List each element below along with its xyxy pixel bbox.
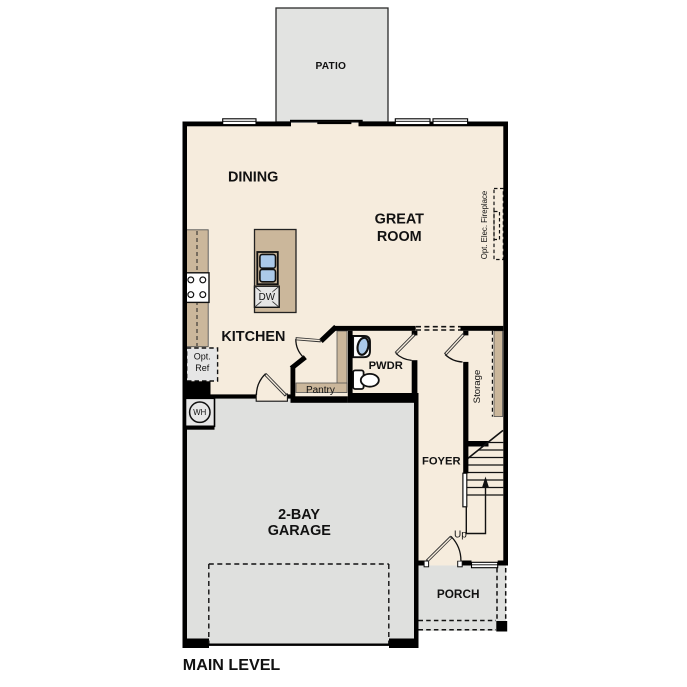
svg-text:GARAGE: GARAGE xyxy=(268,523,332,539)
svg-text:PORCH: PORCH xyxy=(437,587,480,601)
svg-text:Storage: Storage xyxy=(472,370,483,404)
svg-text:MAIN LEVEL: MAIN LEVEL xyxy=(183,656,281,674)
svg-text:PATIO: PATIO xyxy=(315,61,346,72)
svg-text:ROOM: ROOM xyxy=(377,229,422,245)
svg-text:WH: WH xyxy=(193,408,206,417)
svg-text:GREAT: GREAT xyxy=(375,212,425,228)
svg-text:DINING: DINING xyxy=(228,170,278,186)
svg-text:2-BAY: 2-BAY xyxy=(278,507,320,523)
svg-text:FOYER: FOYER xyxy=(422,455,461,467)
svg-text:KITCHEN: KITCHEN xyxy=(221,329,285,345)
svg-text:Opt.: Opt. xyxy=(194,352,211,362)
svg-text:Opt. Elec. Fireplace: Opt. Elec. Fireplace xyxy=(480,191,489,259)
svg-text:Ref: Ref xyxy=(195,363,210,373)
svg-text:Pantry: Pantry xyxy=(306,385,335,396)
svg-text:DW: DW xyxy=(259,292,276,303)
svg-text:Up: Up xyxy=(454,529,467,540)
svg-text:PWDR: PWDR xyxy=(369,360,403,372)
